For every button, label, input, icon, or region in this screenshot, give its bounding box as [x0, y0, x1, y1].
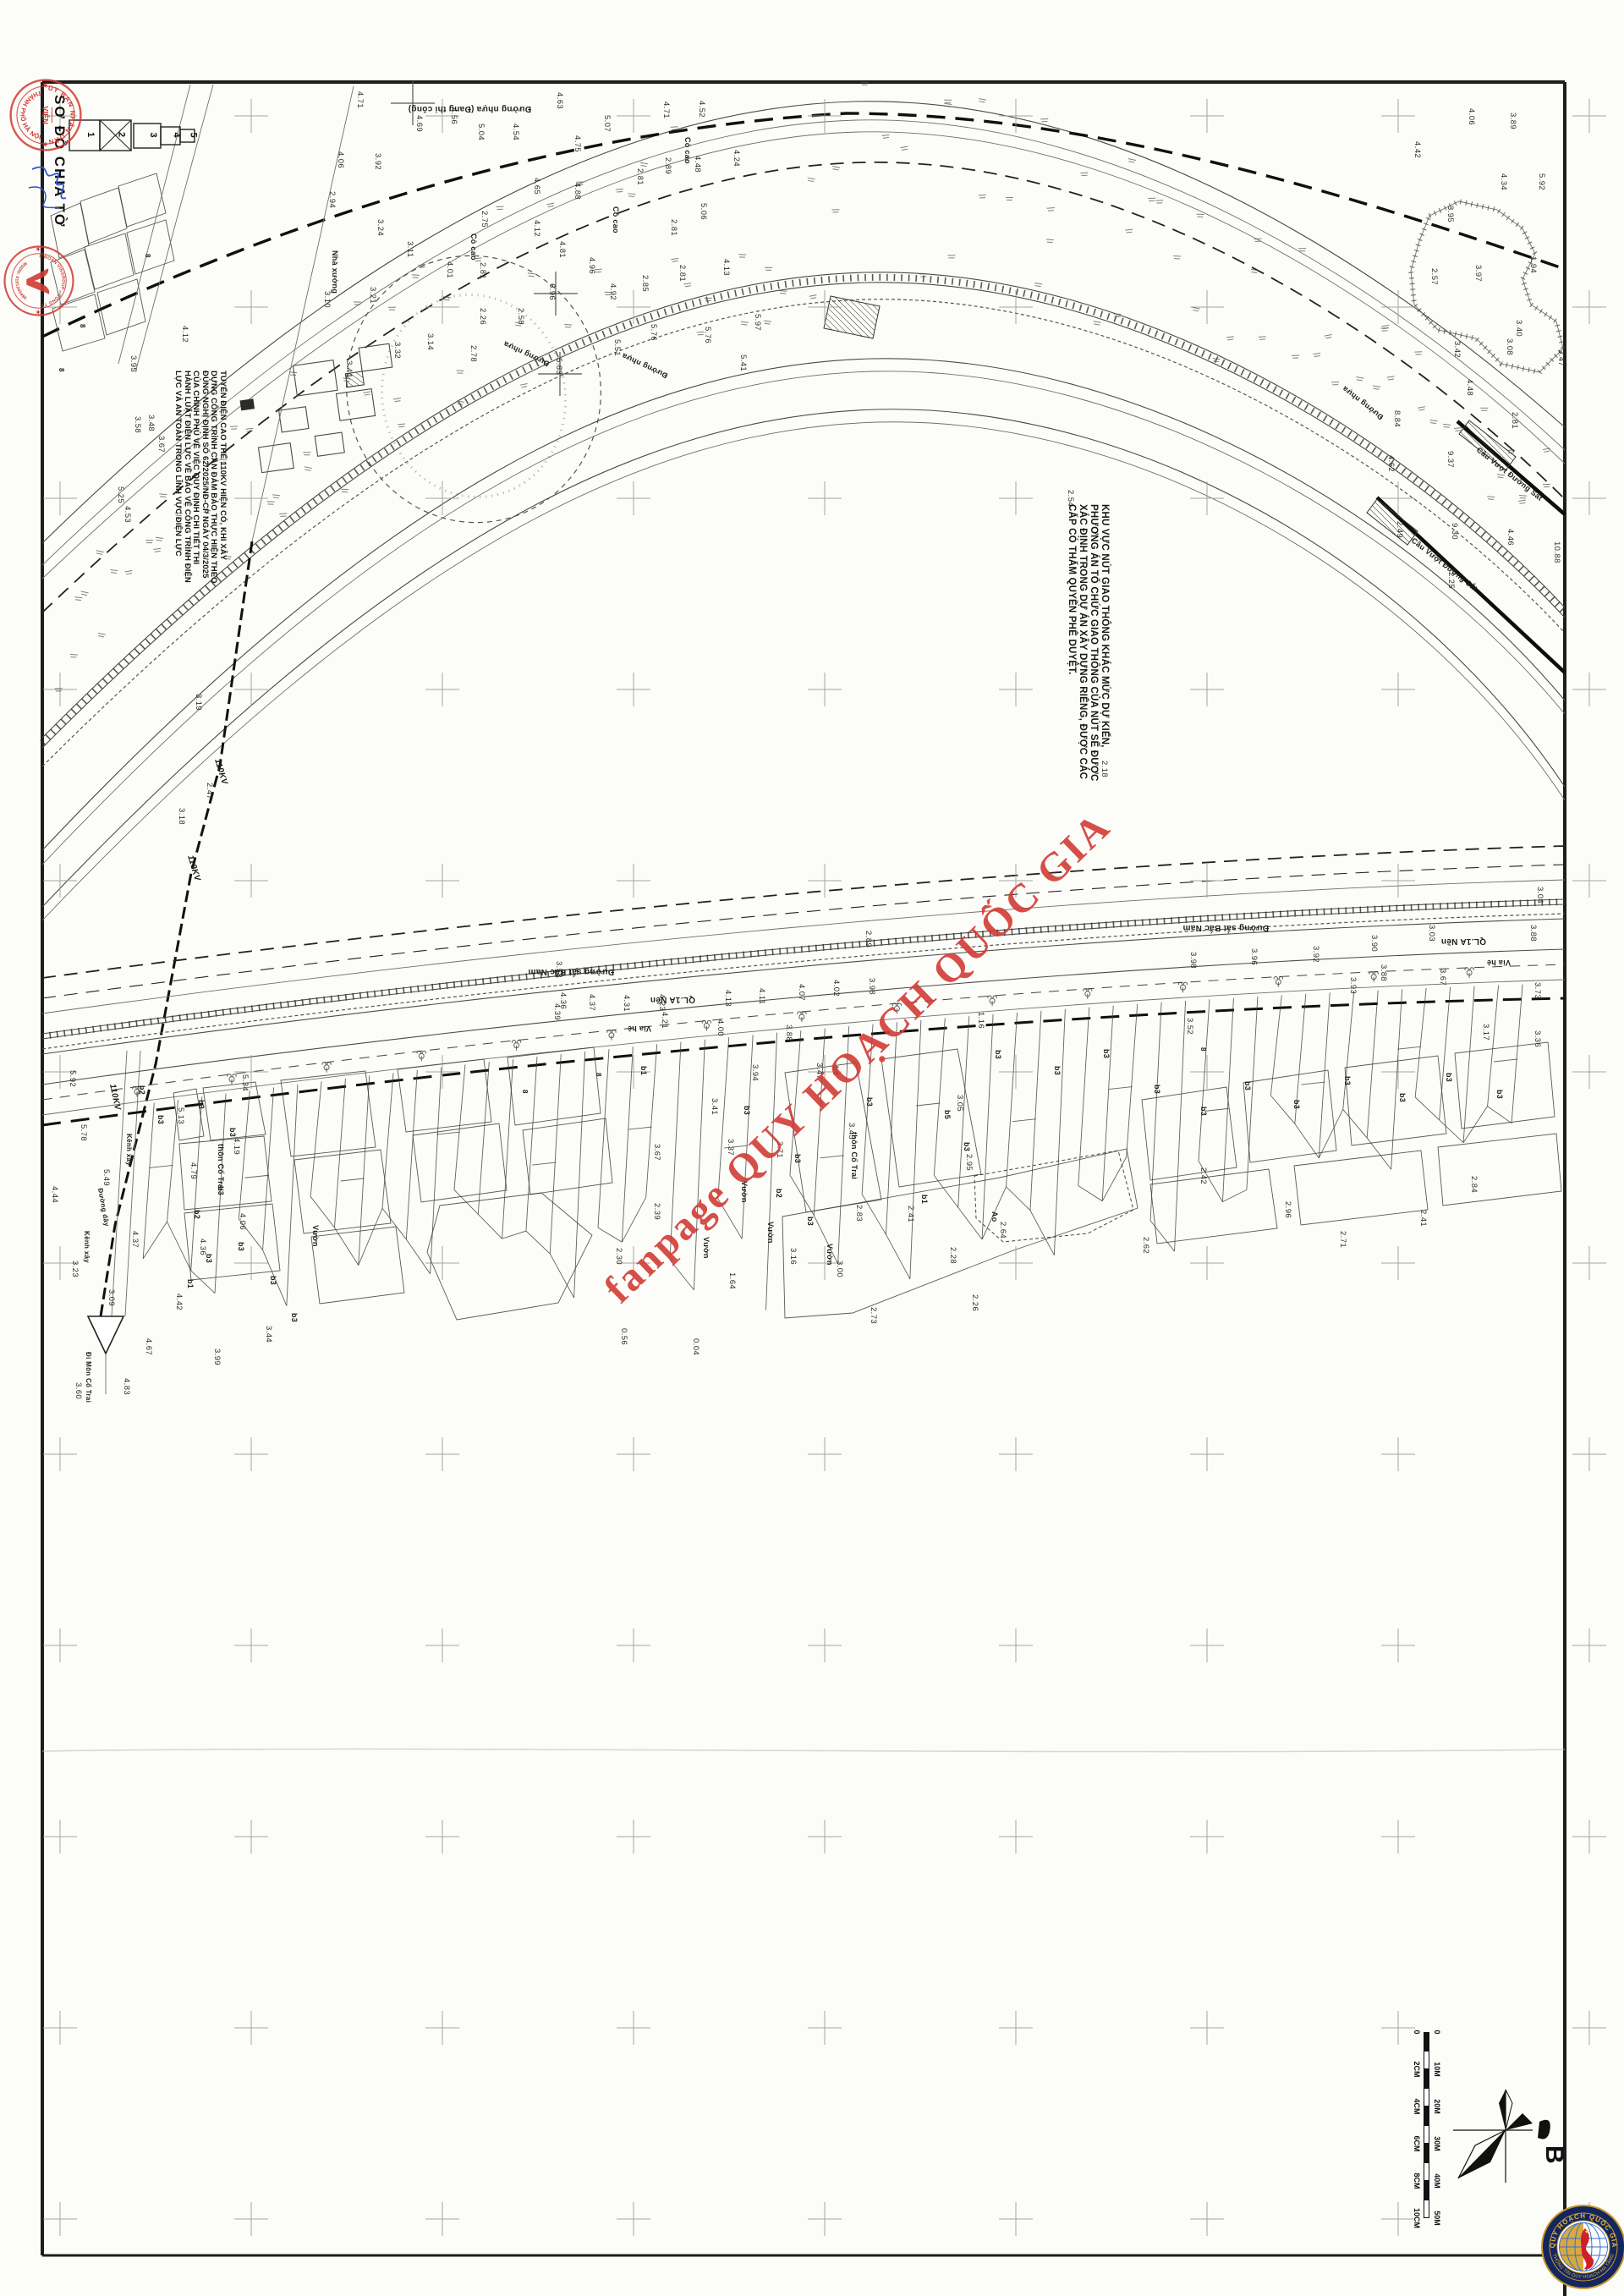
- elevation-label: 3.14: [425, 333, 435, 350]
- map-sheet: 12345 4.714.694.063.922.943.243.114.013.…: [0, 0, 1624, 2296]
- note-line: CẤP CÓ THẨM QUYỀN PHÊ DUYỆT.: [1066, 504, 1077, 843]
- elevation-label: 3.96: [1249, 948, 1259, 965]
- svg-text:★: ★: [35, 309, 41, 315]
- map-label: b3: [290, 1313, 299, 1322]
- scale-label-cm: 6CM: [1413, 2131, 1421, 2156]
- elevation-label: 3.95: [1446, 206, 1455, 222]
- map-label: b2: [193, 1210, 201, 1219]
- elevation-label: 5.49: [101, 1169, 111, 1186]
- junction-note: KHU VỰC NÚT GIAO THÔNG KHÁC MỨC DỰ KIẾN,…: [1066, 504, 1110, 843]
- map-label: b3: [156, 1115, 165, 1124]
- svg-text:TẬP ĐOÀN VINGROUP - CÔNG TY CP: TẬP ĐOÀN VINGROUP - CÔNG TY CP: [37, 254, 66, 307]
- scale-label-m: 40M: [1433, 2168, 1441, 2194]
- elevation-label: 4.52: [697, 101, 706, 118]
- elevation-label: 4.46: [1506, 529, 1515, 546]
- elevation-label: 3.88: [1379, 964, 1388, 981]
- map-label: Đường sắt Bắc Nam: [1182, 923, 1269, 934]
- map-label: b3: [197, 1100, 206, 1109]
- elevation-label: 0.56: [619, 1328, 628, 1345]
- stamp-arc-top: TẬP ĐOÀN VINGROUP - CÔNG TY CP: [37, 254, 66, 307]
- elevation-label: 5.63: [554, 358, 563, 375]
- elevation-label: 2.62: [1141, 1237, 1150, 1254]
- elevation-label: 4.54: [511, 124, 520, 140]
- elevation-label: 2.83: [854, 1205, 864, 1222]
- map-label: b3: [793, 1154, 802, 1163]
- elevation-label: 4.42: [174, 1294, 184, 1310]
- scale-label-m: 0: [1433, 2019, 1441, 2045]
- elevation-label: 3.18: [177, 808, 186, 825]
- map-label: b3: [1153, 1085, 1161, 1094]
- elevation-label: 3.21: [368, 287, 377, 304]
- elevation-label: 4.06: [238, 1213, 247, 1230]
- map-label: Kênh xây: [125, 1134, 133, 1166]
- scale-segment: [1424, 2181, 1429, 2200]
- elevation-label: 3.16: [788, 1248, 798, 1265]
- scale-label-cm: 10CM: [1413, 2205, 1421, 2231]
- scale-segment: [1424, 2069, 1429, 2088]
- map-label: b3: [1445, 1073, 1453, 1082]
- map-label: Vườn: [766, 1222, 775, 1244]
- elevation-label: 4.34: [1499, 173, 1508, 190]
- elevation-label: 4.19: [232, 1138, 241, 1155]
- elevation-label: 3.04: [1535, 887, 1544, 904]
- north-arrow: B: [1438, 2064, 1582, 2208]
- elevation-label: 2.81: [635, 168, 645, 185]
- elevation-label: 4.63: [555, 92, 564, 109]
- elevation-label: 3.67: [652, 1144, 661, 1161]
- elevation-label: 3.10: [322, 291, 332, 308]
- map-label: 8: [144, 254, 151, 258]
- elevation-label: 3.23: [70, 1261, 80, 1277]
- elevation-label: 2.78: [469, 345, 478, 362]
- elevation-label: 9.30: [1450, 523, 1459, 540]
- bridge-abutment-hatch: [1367, 499, 1418, 545]
- note-line: CỦA CHÍNH PHỦ VỀ VIỆC QUY ĐỊNH CHI TIẾT …: [191, 371, 200, 768]
- note-line: LỰC VÀ AN TOÀN TRONG LĨNH VỰC ĐIỆN LỰC: [173, 371, 183, 768]
- map-label: b3: [743, 1106, 751, 1115]
- elevation-label: 5.04: [476, 124, 486, 140]
- elevation-label: 3.42: [1452, 341, 1462, 358]
- elevation-label: 4.39: [552, 1003, 562, 1020]
- note-line: TUYẾN ĐIỆN CAO THẾ 110KV HIỆN CÓ, KHI XÂ…: [218, 371, 228, 768]
- elevation-label: 5.34: [240, 1074, 250, 1091]
- map-label: Cỏ cao: [612, 206, 620, 233]
- scale-segment: [1424, 2051, 1429, 2069]
- map-label: Đường sắt Bắc Nam: [528, 967, 614, 978]
- elevation-label: 2.58: [516, 308, 525, 325]
- elevation-label: 10.88: [1552, 541, 1561, 563]
- note-line: DỰNG CÔNG TRÌNH CẦN ĐẢM BẢO THỰC HIỆN TH…: [209, 371, 218, 768]
- map-label: b3: [269, 1276, 277, 1285]
- elevation-label: 3.88: [1528, 925, 1538, 942]
- elevation-label: 4.83: [122, 1378, 131, 1395]
- elevation-label: 5.25: [116, 486, 125, 503]
- elevation-label: 3.60: [74, 1382, 83, 1399]
- elevation-label: 2.95: [964, 1154, 974, 1171]
- elevation-label: 2.42: [1199, 1167, 1208, 1184]
- elevation-label: 3.44: [264, 1326, 273, 1343]
- elevation-label: 1.94: [1528, 256, 1538, 273]
- note-line: XÁC ĐỊNH TRONG DỰ ÁN XÂY DỰNG RIÊNG, ĐƯỢ…: [1077, 504, 1088, 843]
- map-label: Kênh xây: [83, 1231, 91, 1263]
- sheet-index-diagram: 12345: [69, 120, 199, 151]
- elevation-label: 3.92: [1311, 946, 1320, 963]
- map-label: b3: [1292, 1100, 1301, 1109]
- elevation-label: 4.06: [336, 151, 345, 168]
- map-label: b3: [228, 1128, 237, 1137]
- sheet-frame: [42, 82, 1565, 2296]
- elevation-label: 2.85: [640, 275, 650, 292]
- scale-label-cm: 0: [1413, 2019, 1421, 2045]
- elevation-label: 8.84: [1392, 410, 1402, 427]
- scale-bar: 010M20M30M40M50M 02CM4CM6CM8CM10CM: [1397, 2032, 1448, 2235]
- elevation-label: 4.12: [180, 326, 189, 343]
- elevation-label: 2.26: [478, 308, 487, 325]
- map-label: Vườn: [702, 1237, 710, 1259]
- scale-label-m: 30M: [1433, 2131, 1441, 2156]
- map-label: b3: [217, 1186, 225, 1195]
- note-line: ĐÚNG NGHỊ ĐỊNH SỐ 62/2025/NĐ-CP NGÀY 04/…: [200, 371, 210, 768]
- elevation-label: 2.96: [1283, 1201, 1292, 1218]
- scale-segment: [1424, 2200, 1429, 2218]
- svg-text:★: ★: [41, 140, 49, 147]
- village-parcels: [173, 1042, 1561, 1320]
- elevation-label: 2.49: [1395, 521, 1404, 538]
- elevation-label: 3.08: [1505, 338, 1514, 355]
- stamp-arc-bottom: THÀNH PHỐ HÀ NỘI: [19, 89, 43, 141]
- elevation-label: 4.31: [622, 995, 631, 1012]
- elevation-label: 3.67: [156, 436, 166, 453]
- elevation-label: 2.94: [327, 191, 337, 208]
- elevation-label: 3.88: [784, 1024, 793, 1041]
- elevation-label: 3.40: [1514, 320, 1523, 337]
- elevation-label: 4.53: [123, 506, 132, 523]
- elevation-label: 2.41: [1418, 1210, 1428, 1227]
- elevation-label: 5.92: [68, 1070, 77, 1087]
- elevation-label: 3.73: [1533, 982, 1542, 999]
- scale-segment: [1424, 2144, 1429, 2162]
- elevation-label: 0.04: [691, 1338, 700, 1355]
- elevation-label: 2.84: [1469, 1176, 1479, 1193]
- elevation-label: 1.16: [976, 1012, 985, 1029]
- elevation-label: 5.76: [649, 324, 658, 341]
- elevation-label: 4.75: [573, 135, 582, 152]
- elevation-label: 4.62: [1386, 455, 1396, 472]
- elevation-label: 4.69: [414, 115, 424, 132]
- elevation-label: 3.44: [344, 360, 354, 377]
- note-line: HÀNH LUẬT ĐIỆN LỰC VỀ BẢO VỆ CÔNG TRÌNH …: [183, 371, 192, 768]
- scale-label-m: 20M: [1433, 2094, 1441, 2119]
- map-label: b3: [1343, 1076, 1352, 1085]
- elevation-label: 2.73: [869, 1307, 878, 1324]
- index-box-number: 3: [148, 133, 158, 138]
- elevation-label: 2.57: [1429, 268, 1439, 285]
- map-label: Cầu Vượt Đường Sắt: [1410, 536, 1480, 593]
- map-canvas: 12345 4.714.694.063.922.943.243.114.013.…: [0, 0, 1624, 2296]
- elevation-label: 2.64: [998, 1222, 1007, 1239]
- north-label: B: [1540, 2145, 1568, 2164]
- elevation-label: 3.99: [212, 1348, 222, 1365]
- vingroup-v-logo: [26, 268, 49, 294]
- map-label: b1: [639, 1066, 648, 1075]
- elevation-label: 4.67: [144, 1338, 153, 1355]
- elevation-label: 2.71: [1338, 1231, 1347, 1248]
- index-box-number: 1: [85, 132, 96, 137]
- map-label: b3: [1053, 1066, 1062, 1075]
- elevation-label: 3.11: [405, 241, 414, 257]
- elevation-label: 5.51: [612, 339, 622, 356]
- map-label: b3: [237, 1242, 245, 1251]
- elevation-label: 4.01: [445, 261, 454, 278]
- elevation-label: 3.93: [1348, 977, 1358, 994]
- elevation-label: 3.90: [1369, 935, 1379, 952]
- power-line-note: TUYẾN ĐIỆN CAO THẾ 110KV HIỆN CÓ, KHI XÂ…: [173, 371, 227, 768]
- elevation-label: 3.24: [376, 219, 385, 236]
- railway-curve-ticks: [42, 277, 1565, 743]
- highway-curves: [42, 102, 1565, 920]
- elevation-label: 6.96: [547, 283, 557, 300]
- scale-segment: [1424, 2125, 1429, 2144]
- svg-text:★: ★: [41, 81, 49, 88]
- hanoi-stamp: ỦY BAN NHÂN DÂN THÀNH PHỐ HÀ NỘI VIỆN ★ …: [7, 76, 85, 154]
- elevation-label: 4.12: [532, 220, 541, 237]
- elevation-label: 5.13: [176, 1107, 185, 1124]
- fold-line: [42, 1749, 1565, 1751]
- index-box-number: 5: [189, 133, 199, 138]
- scale-segment: [1424, 2162, 1429, 2181]
- map-label: b3: [1398, 1093, 1407, 1102]
- bridge-abutment-hatch: [824, 296, 880, 338]
- map-label: Đường nhựa: [1340, 384, 1385, 421]
- elevation-label: 4.48: [693, 156, 702, 173]
- elevation-label: 4.81: [557, 241, 567, 258]
- map-label: b5: [943, 1110, 952, 1119]
- elevation-label: 4.37: [587, 994, 596, 1011]
- elevation-label: 4.71: [355, 91, 365, 108]
- scale-label-m: 50M: [1433, 2205, 1441, 2231]
- map-label: Cỏ cao: [683, 137, 692, 164]
- map-label: b3: [1199, 1107, 1208, 1116]
- elevation-label: 3.89: [1508, 113, 1517, 129]
- map-label: b2: [775, 1189, 783, 1198]
- map-label: 8: [521, 1090, 529, 1094]
- map-label: Đi Môn Cổ Trai: [85, 1352, 92, 1403]
- elevation-label: 2.81: [678, 265, 687, 282]
- elevation-labels: 4.714.694.063.922.943.243.114.013.213.10…: [50, 91, 1566, 1399]
- stamp-center: VIỆN: [41, 106, 50, 124]
- elevation-label: 2.81: [478, 262, 487, 279]
- elevation-label: 4.00: [716, 1019, 725, 1036]
- elevation-label: 3.67: [1438, 969, 1447, 986]
- map-label: b3: [994, 1050, 1002, 1059]
- junction-area: [235, 232, 626, 546]
- quy-hoach-logo: QUY HOẠCH QUỐC GIA THÔNG TIN QUY HOẠCH-H…: [1539, 2203, 1624, 2291]
- elevation-label: 4.88: [573, 183, 582, 200]
- elevation-label: 5.76: [703, 327, 712, 343]
- scale-segment: [1424, 2106, 1429, 2125]
- elevation-label: 4.37: [130, 1231, 140, 1248]
- map-label: 8: [58, 368, 65, 372]
- map-label: 110KV: [185, 854, 202, 883]
- svg-text:THÀNH PHỐ HÀ NỘI: THÀNH PHỐ HÀ NỘI: [19, 89, 43, 141]
- map-label: 8: [1199, 1047, 1207, 1052]
- elevation-label: 2.89: [864, 931, 873, 948]
- elevation-label: 3.98: [1188, 952, 1198, 969]
- elevation-label: 4.79: [189, 1162, 198, 1179]
- map-label: QL.1A Nền: [650, 995, 695, 1005]
- elevation-label: 1.64: [727, 1272, 737, 1289]
- elevation-label: 3.17: [1481, 1024, 1490, 1041]
- elevation-label: 2.41: [906, 1206, 915, 1222]
- elevation-label: 4.96: [587, 257, 596, 274]
- map-label: 110KV: [107, 1083, 122, 1112]
- elevation-label: 2.81: [669, 219, 678, 236]
- north-flag: [1538, 2120, 1550, 2139]
- elevation-label: 3.98: [867, 978, 876, 995]
- elevation-label: 3.52: [1185, 1018, 1194, 1035]
- elevation-label: 3.94: [750, 1064, 760, 1081]
- elevation-label: 4.71: [661, 102, 671, 118]
- map-label: b2: [138, 1085, 146, 1095]
- map-label: thôn Cổ Trai: [850, 1132, 859, 1179]
- elevation-label: 4.42: [1413, 141, 1422, 158]
- elevation-label: 2.28: [948, 1247, 957, 1264]
- scale-label-cm: 4CM: [1413, 2094, 1421, 2119]
- elevation-label: 4.02: [831, 980, 841, 997]
- map-label: b3: [1102, 1049, 1111, 1058]
- survey-plus-grid: [43, 99, 1606, 2236]
- elevation-label: 2.26: [970, 1294, 979, 1311]
- elevation-label: 3.09: [107, 1289, 116, 1306]
- building-cluster: [235, 343, 404, 474]
- elevation-label: 3.92: [373, 153, 382, 170]
- note-line: PHƯƠNG ÁN TỔ CHỨC GIAO THÔNG CỦA NÚT SẼ …: [1088, 504, 1099, 843]
- map-label: b3: [1495, 1090, 1504, 1099]
- elevation-label: 3.97: [1473, 265, 1483, 282]
- map-label: Đường nhựa (Đang thi công): [409, 104, 532, 113]
- elevation-label: 3.48: [146, 415, 156, 431]
- map-label: Vườn: [826, 1244, 834, 1266]
- elevation-label: 4.21: [660, 1012, 669, 1029]
- map-label: b3: [205, 1254, 213, 1263]
- map-label: b3: [963, 1142, 971, 1151]
- star-icon: ★: [1584, 2228, 1589, 2235]
- elevation-label: 5.07: [602, 115, 612, 132]
- svg-text:★: ★: [35, 246, 41, 252]
- scale-label-m: 10M: [1433, 2057, 1441, 2082]
- scale-segment: [1424, 2088, 1429, 2106]
- map-labels: Đường nhựa (Đang thi công)Đường sắt Bắc …: [58, 104, 1544, 1403]
- elevation-label: 4.65: [532, 178, 541, 195]
- map-label: Vườn: [311, 1225, 320, 1247]
- elevation-label: 4.06: [1467, 108, 1476, 125]
- map-label: 8: [595, 1073, 602, 1077]
- signature: [24, 159, 74, 218]
- vingroup-stamp: TẬP ĐOÀN VINGROUP - CÔNG TY CP MSDN: 010…: [0, 242, 78, 320]
- elevation-label: 2.89: [663, 157, 672, 174]
- elevation-label: 2.47: [205, 783, 214, 799]
- elevation-label: 5.41: [738, 354, 748, 371]
- grass-symbols: [55, 82, 1551, 691]
- elevation-label: 5.06: [699, 203, 708, 220]
- map-label: Nhà xưởng: [331, 250, 339, 294]
- elevation-label: 3.32: [392, 342, 402, 359]
- index-box-number: 2: [117, 132, 127, 137]
- map-label: b3: [806, 1217, 815, 1226]
- elevation-label: 4.92: [608, 283, 617, 300]
- elevation-label: 4.44: [50, 1186, 59, 1203]
- elevation-label: 3.95: [129, 355, 138, 372]
- map-label: Cỏ cao: [469, 233, 478, 261]
- elevation-label: 4.07: [797, 984, 806, 1001]
- map-label: thôn Cổ Trai: [217, 1144, 225, 1191]
- elevation-label: 3.47: [1556, 349, 1566, 366]
- map-label: QL.1A Nền: [1441, 937, 1486, 947]
- elevation-label: 2.81: [1510, 412, 1519, 429]
- elevation-label: 5.97: [753, 314, 762, 331]
- scale-label-cm: 2CM: [1413, 2057, 1421, 2082]
- elevation-label: 2.75: [480, 211, 489, 228]
- elevation-label: 4.13: [721, 259, 731, 276]
- elevation-label: 4.11: [757, 988, 766, 1004]
- map-label: b1: [920, 1195, 929, 1204]
- elevation-label: 4.13: [723, 990, 732, 1007]
- map-label: Ao: [990, 1211, 999, 1222]
- elevation-label: 4.24: [732, 150, 741, 167]
- note-line: KHU VỰC NÚT GIAO THÔNG KHÁC MỨC DỰ KIẾN,: [1099, 504, 1110, 843]
- map-label: b1: [186, 1279, 195, 1288]
- planning-boundary-dashed: [42, 113, 1565, 337]
- map-label: Đường dây: [96, 1188, 111, 1228]
- elevation-label: 3.36: [1533, 1030, 1542, 1047]
- map-label: 8: [79, 324, 86, 328]
- map-label: b3: [1243, 1081, 1252, 1090]
- elevation-label: 3.03: [1427, 925, 1436, 942]
- map-label: Vỉa hè: [1487, 958, 1511, 967]
- flow-arrow: [88, 1316, 123, 1354]
- map-label: Đường nhựa: [620, 351, 669, 380]
- elevation-label: 9.37: [1446, 451, 1455, 468]
- elevation-label: 5.78: [79, 1124, 88, 1141]
- elevation-label: 5.92: [1537, 173, 1546, 190]
- map-label: Vỉa hè: [628, 1024, 651, 1033]
- scale-label-cm: 8CM: [1413, 2168, 1421, 2194]
- elevation-label: 3.41: [710, 1098, 719, 1115]
- pond-depression: [1411, 201, 1563, 372]
- elevation-label: 3.05: [955, 1095, 964, 1112]
- globe: ★: [1559, 2222, 1608, 2271]
- map-label: b3: [865, 1097, 874, 1107]
- scale-segment: [1424, 2032, 1429, 2051]
- elevation-label: 4.48: [1465, 379, 1474, 396]
- elevation-label: 3.58: [133, 416, 142, 433]
- elevation-label: 3.00: [835, 1261, 844, 1277]
